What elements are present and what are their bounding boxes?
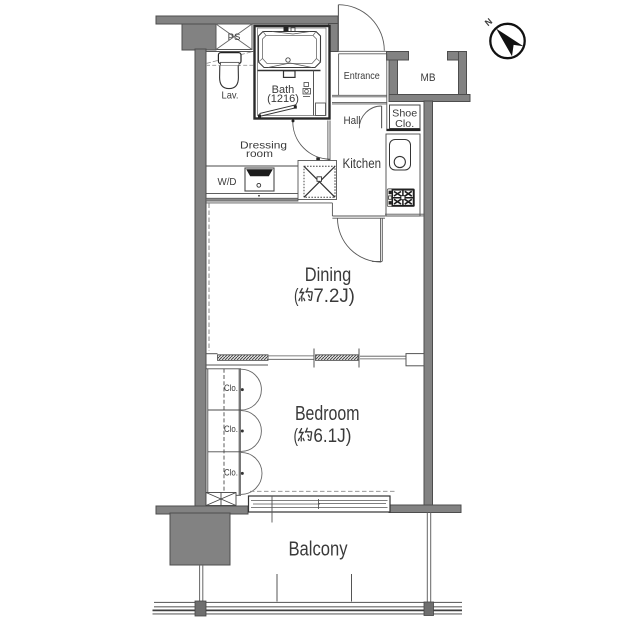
svg-text:room: room [246,148,273,160]
svg-text:Clo.: Clo. [395,119,414,130]
svg-text:MB: MB [421,72,436,84]
svg-text:Clo.: Clo. [224,424,238,434]
svg-text:PS: PS [228,32,241,43]
svg-text:7.2J): 7.2J) [313,286,355,307]
svg-text:Bedroom: Bedroom [295,403,360,425]
svg-text:Entrance: Entrance [344,70,380,82]
svg-text:Hall: Hall [344,115,361,127]
svg-text:(: ( [294,286,299,307]
svg-text:Clo.: Clo. [224,468,238,478]
svg-text:6.1J): 6.1J) [313,426,351,447]
svg-text:(1216): (1216) [267,93,299,105]
svg-text:Dining: Dining [305,264,352,286]
svg-text:Kitchen: Kitchen [343,156,382,171]
svg-text:W/D: W/D [218,176,237,188]
svg-text:Balcony: Balcony [289,538,348,560]
svg-text:Clo.: Clo. [224,383,238,393]
svg-text:Lav.: Lav. [222,90,239,102]
svg-text:(: ( [294,426,299,447]
